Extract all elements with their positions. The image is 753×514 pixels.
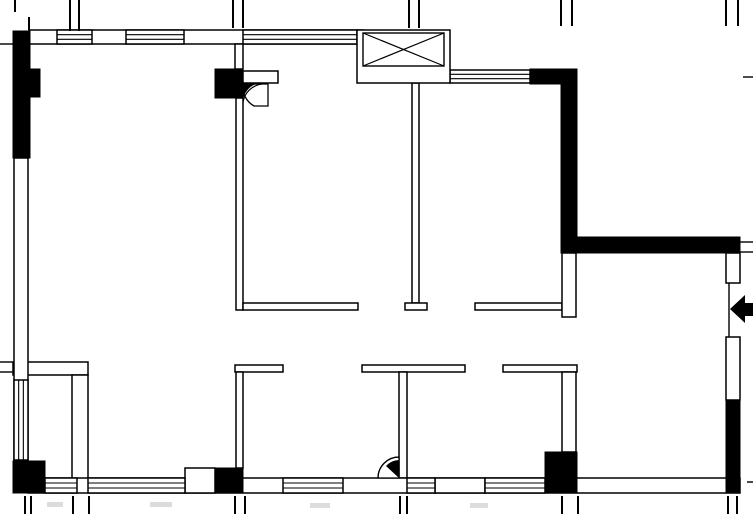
left-balcony-wall-vertical [72, 375, 88, 480]
closet-stub-near-column [243, 71, 278, 83]
bottom-room-divider-vertical-3 [562, 372, 576, 452]
column-top-left [13, 31, 30, 158]
window-bottom-2 [88, 478, 185, 493]
column-bottom-center [215, 468, 243, 493]
window-bottom-1 [45, 478, 77, 493]
window-top-1 [57, 30, 92, 44]
elevator-stem-wall [412, 83, 419, 303]
dimension-text-remnant [47, 502, 63, 507]
bottom-room-l-wall [503, 365, 577, 372]
window-top-3 [243, 30, 357, 44]
column-right-bottom [726, 400, 740, 493]
dimension-text-remnant [470, 503, 488, 508]
dimension-text-remnant [310, 503, 330, 508]
bottom-room-divider-stub [235, 365, 283, 372]
window-bottom-4 [407, 478, 435, 493]
window-top-right [450, 70, 530, 83]
bottom-wall-plain-segment [435, 478, 485, 493]
mid-wall-left-segment [243, 303, 358, 310]
bottom-room-t-wall [362, 365, 465, 372]
mid-wall-right-segment [475, 303, 562, 310]
shear-wall-long-horizontal [561, 237, 740, 253]
window-top-2 [126, 30, 184, 44]
window-bottom-5 [485, 478, 545, 493]
window-bottom-3 [283, 478, 343, 493]
column-top-center [215, 69, 243, 98]
dimension-text-remnant [150, 502, 172, 507]
column-bottom-right [545, 452, 577, 493]
hall-wall-vertical [562, 253, 576, 317]
bottom-room-divider-vertical-1 [236, 372, 243, 468]
floor-plan-page [0, 0, 753, 514]
bottom-wall-pier [185, 468, 215, 493]
bottom-room-divider-vertical-2 [399, 372, 407, 478]
column-bottom-left [13, 461, 45, 493]
column-top-left-bump [30, 69, 40, 97]
elevator-stem-cap [405, 303, 427, 310]
shear-wall-vertical [561, 69, 577, 253]
wall-pier-below-top-wall [235, 44, 243, 69]
right-wall-above-entry [726, 253, 740, 283]
floor-plan-canvas [0, 0, 753, 514]
right-wall-below-entry [726, 337, 740, 400]
window-left-balcony [14, 380, 28, 460]
interior-wall-vertical-left-of-living [236, 98, 243, 310]
